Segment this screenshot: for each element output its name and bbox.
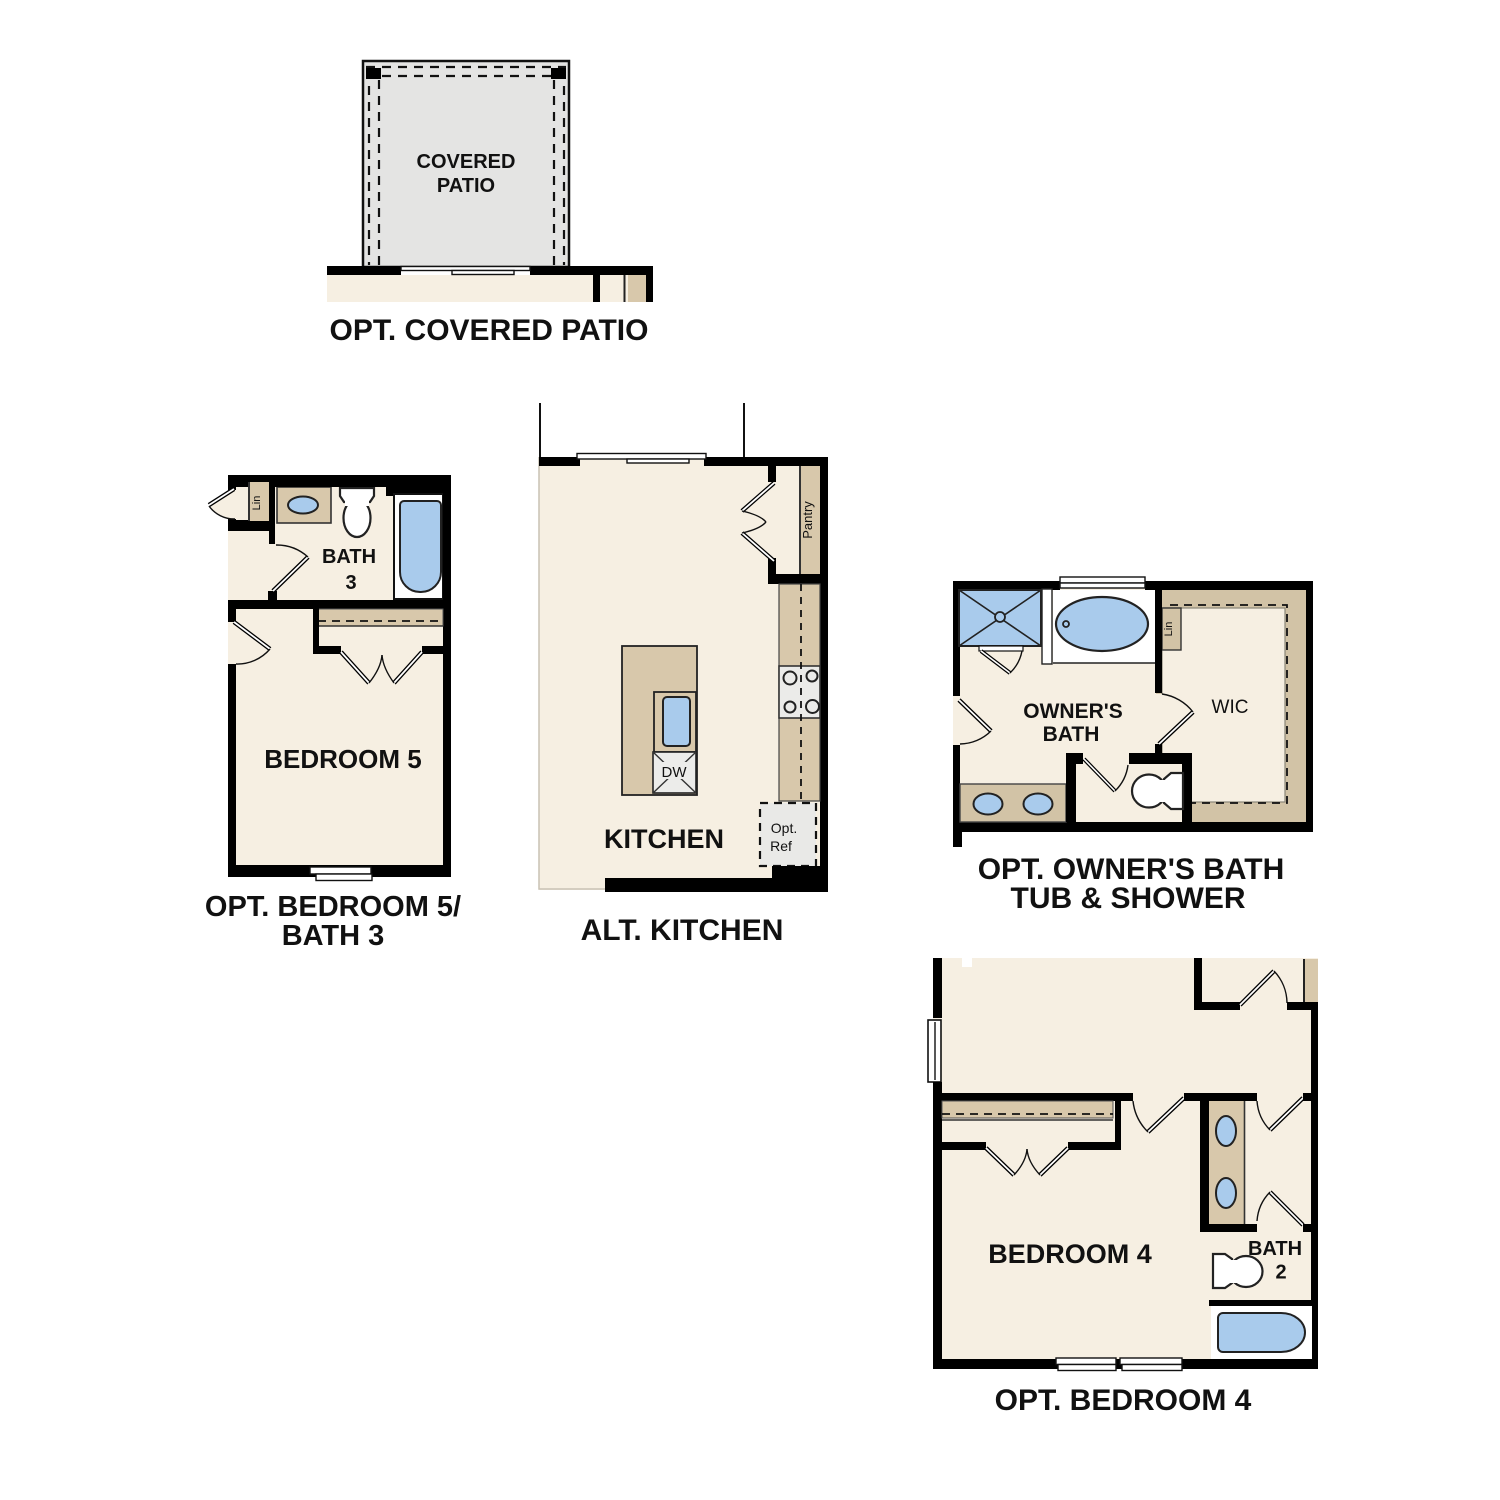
svg-text:OPT. COVERED PATIO: OPT. COVERED PATIO bbox=[330, 314, 649, 347]
svg-text:BATH: BATH bbox=[1043, 723, 1100, 746]
svg-text:OPT. BEDROOM 5/: OPT. BEDROOM 5/ bbox=[205, 891, 461, 923]
svg-text:BATH 3: BATH 3 bbox=[282, 920, 385, 952]
svg-text:ALT. KITCHEN: ALT. KITCHEN bbox=[581, 914, 784, 947]
svg-text:BEDROOM 4: BEDROOM 4 bbox=[988, 1239, 1152, 1269]
svg-text:DW: DW bbox=[662, 764, 688, 781]
svg-text:Lin: Lin bbox=[251, 496, 263, 511]
svg-text:2: 2 bbox=[1275, 1262, 1286, 1284]
svg-text:3: 3 bbox=[345, 572, 356, 594]
svg-text:BATH: BATH bbox=[322, 546, 376, 568]
svg-text:Ref: Ref bbox=[770, 838, 792, 854]
svg-text:Lin: Lin bbox=[1163, 622, 1175, 637]
svg-text:TUB & SHOWER: TUB & SHOWER bbox=[1011, 882, 1246, 915]
svg-text:Pantry: Pantry bbox=[800, 501, 815, 539]
svg-text:BATH: BATH bbox=[1248, 1238, 1302, 1260]
svg-text:COVERED: COVERED bbox=[417, 151, 516, 173]
svg-text:Opt.: Opt. bbox=[771, 820, 797, 836]
svg-text:PATIO: PATIO bbox=[437, 175, 495, 197]
svg-text:KITCHEN: KITCHEN bbox=[604, 824, 724, 854]
svg-text:WIC: WIC bbox=[1212, 697, 1249, 718]
svg-text:BEDROOM 5: BEDROOM 5 bbox=[264, 744, 421, 774]
svg-text:OWNER'S: OWNER'S bbox=[1023, 700, 1123, 723]
svg-text:OPT. BEDROOM 4: OPT. BEDROOM 4 bbox=[995, 1384, 1252, 1417]
